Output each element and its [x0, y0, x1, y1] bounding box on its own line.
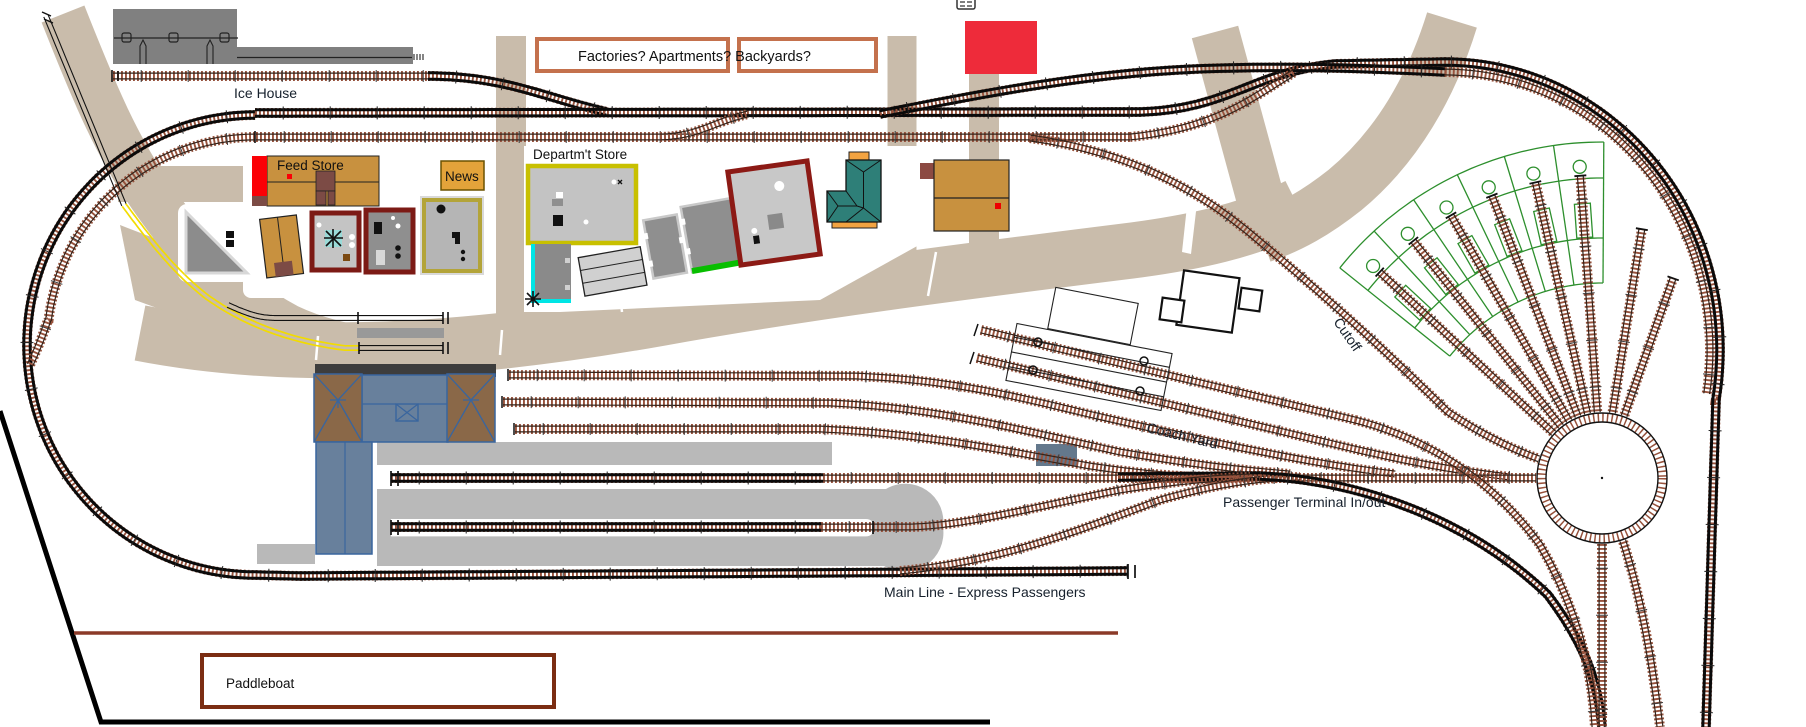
svg-text:Factories? Apartments? Backyar: Factories? Apartments? Backyards?: [578, 49, 811, 65]
svg-text:Passenger Terminal In/out: Passenger Terminal In/out: [1223, 494, 1385, 510]
svg-text:Departm't Store: Departm't Store: [533, 147, 627, 162]
svg-text:Ice House: Ice House: [234, 85, 297, 101]
svg-text:Feed Store: Feed Store: [277, 158, 344, 173]
svg-text:Main Line - Express Passengers: Main Line - Express Passengers: [884, 584, 1086, 600]
svg-text:Paddleboat: Paddleboat: [226, 676, 295, 691]
svg-text:News: News: [445, 169, 479, 184]
